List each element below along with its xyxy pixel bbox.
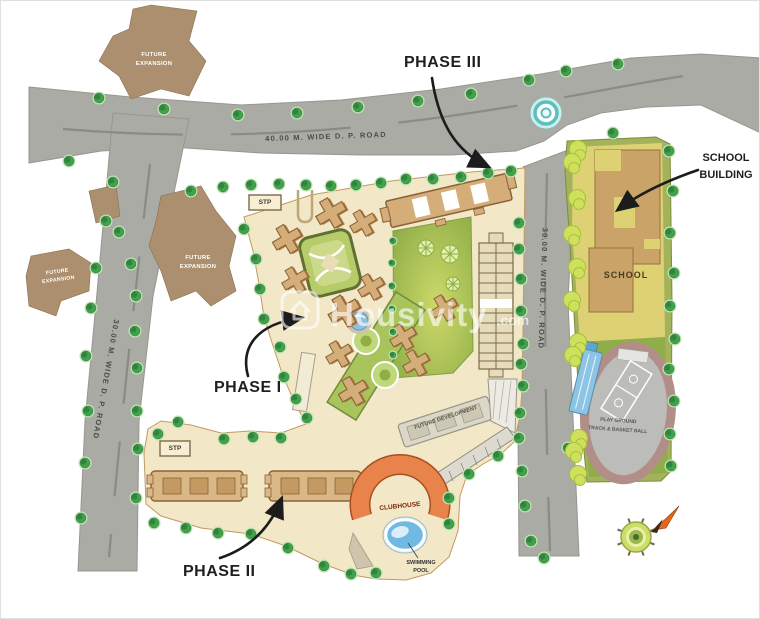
tree-icon: [400, 173, 413, 186]
phase2-building-a: [147, 471, 247, 501]
tree-icon: [505, 165, 518, 178]
tree-icon: [80, 350, 93, 363]
tree-icon: [75, 512, 88, 525]
tree-icon: [668, 267, 681, 280]
tree-icon: [100, 215, 113, 228]
stp-label-south: STP: [160, 444, 190, 454]
tree-icon: [513, 217, 526, 230]
tree-icon: [273, 178, 286, 191]
roundabout-icon: [530, 97, 562, 129]
tree-icon: [247, 431, 260, 444]
tree-icon: [129, 325, 142, 338]
watermark-brand: Housivity: [330, 298, 488, 331]
tree-icon: [515, 358, 528, 371]
swimming-pool-label: SWIMMING POOL: [397, 559, 445, 576]
tree-icon: [664, 300, 677, 313]
tree-icon: [345, 568, 358, 581]
tree-icon: [370, 567, 383, 580]
tree-icon: [132, 443, 145, 456]
future-expansion-area-center: [149, 186, 236, 306]
tree-icon: [79, 457, 92, 470]
phase3-label: PHASE III: [404, 54, 481, 72]
tree-icon: [325, 180, 338, 193]
tree-icon: [525, 535, 538, 548]
tree-icon: [560, 65, 573, 78]
tree-icon: [607, 127, 620, 140]
future-expansion-label-top: FUTURE EXPANSION: [126, 51, 182, 68]
tree-icon: [514, 407, 527, 420]
tree-icon: [131, 405, 144, 418]
tree-icon: [291, 107, 304, 120]
tree-icon: [130, 492, 143, 505]
tree-icon: [515, 273, 528, 286]
tree-icon: [513, 243, 526, 256]
tree-icon: [517, 338, 530, 351]
phase2-building-b: [265, 471, 365, 501]
tree-icon: [172, 416, 185, 429]
tree-icon: [113, 226, 126, 239]
tree-icon: [523, 74, 536, 87]
tree-icon: [130, 290, 143, 303]
tree-icon: [125, 258, 138, 271]
tree-icon: [93, 92, 106, 105]
tree-icon: [290, 393, 303, 406]
tree-icon: [665, 460, 678, 473]
tree-icon: [427, 173, 440, 186]
tree-icon: [443, 518, 456, 531]
tree-icon: [274, 341, 287, 354]
tree-icon: [245, 179, 258, 192]
tree-icon: [664, 428, 677, 441]
tree-icon: [516, 465, 529, 478]
north-arrow-icon: [651, 506, 679, 533]
house-logo-icon: [279, 289, 321, 331]
tree-icon: [492, 450, 505, 463]
tree-icon: [663, 145, 676, 158]
watermark: Housivity .com: [279, 289, 529, 331]
tree-icon: [465, 88, 478, 101]
tree-icon: [107, 176, 120, 189]
tree-icon: [375, 177, 388, 190]
tree-icon: [85, 302, 98, 315]
tree-icon: [63, 155, 76, 168]
tree-icon: [517, 380, 530, 393]
tree-icon: [152, 428, 165, 441]
watermark-suffix: .com: [497, 309, 530, 331]
tree-icon: [250, 253, 263, 266]
tree-icon: [482, 167, 495, 180]
tree-icon: [443, 492, 456, 505]
tree-icon: [254, 283, 267, 296]
tree-icon: [538, 552, 551, 565]
tree-icon: [668, 395, 681, 408]
tree-icon: [82, 405, 95, 418]
stp-label-north: STP: [249, 198, 281, 208]
school-label: SCHOOL: [596, 269, 656, 283]
tree-icon: [275, 432, 288, 445]
tree-icon: [664, 227, 677, 240]
tree-icon: [352, 101, 365, 114]
tree-icon: [217, 181, 230, 194]
tree-icon: [131, 362, 144, 375]
tree-icon: [667, 185, 680, 198]
tree-icon: [463, 468, 476, 481]
tree-icon: [148, 517, 161, 530]
lime-tree-icon: [569, 259, 586, 279]
tree-icon: [412, 95, 425, 108]
site-plan-map: PHASE III PHASE I PHASE II SCHOOL BUILDI…: [0, 0, 760, 619]
tree-icon: [258, 313, 271, 326]
tree-icon: [513, 432, 526, 445]
tree-icon: [282, 542, 295, 555]
compass-rose-icon: [618, 519, 655, 556]
tree-icon: [389, 237, 398, 246]
future-expansion-label-center: FUTURE EXPANSION: [170, 254, 226, 271]
tree-icon: [158, 103, 171, 116]
tree-icon: [519, 500, 532, 513]
tree-icon: [389, 351, 398, 360]
tree-icon: [185, 185, 198, 198]
tree-icon: [612, 58, 625, 71]
tree-icon: [663, 363, 676, 376]
phase1-label: PHASE I: [214, 379, 282, 397]
phase2-label: PHASE II: [183, 563, 255, 581]
tree-icon: [180, 522, 193, 535]
tree-icon: [90, 262, 103, 275]
tree-icon: [218, 433, 231, 446]
tree-icon: [232, 109, 245, 122]
tree-icon: [318, 560, 331, 573]
tree-icon: [669, 333, 682, 346]
tree-icon: [212, 527, 225, 540]
tree-icon: [455, 171, 468, 184]
tree-icon: [301, 412, 314, 425]
tree-icon: [238, 223, 251, 236]
school-building-label: SCHOOL BUILDING: [691, 150, 760, 184]
tree-icon: [388, 259, 397, 268]
tree-icon: [350, 179, 363, 192]
tree-icon: [300, 179, 313, 192]
